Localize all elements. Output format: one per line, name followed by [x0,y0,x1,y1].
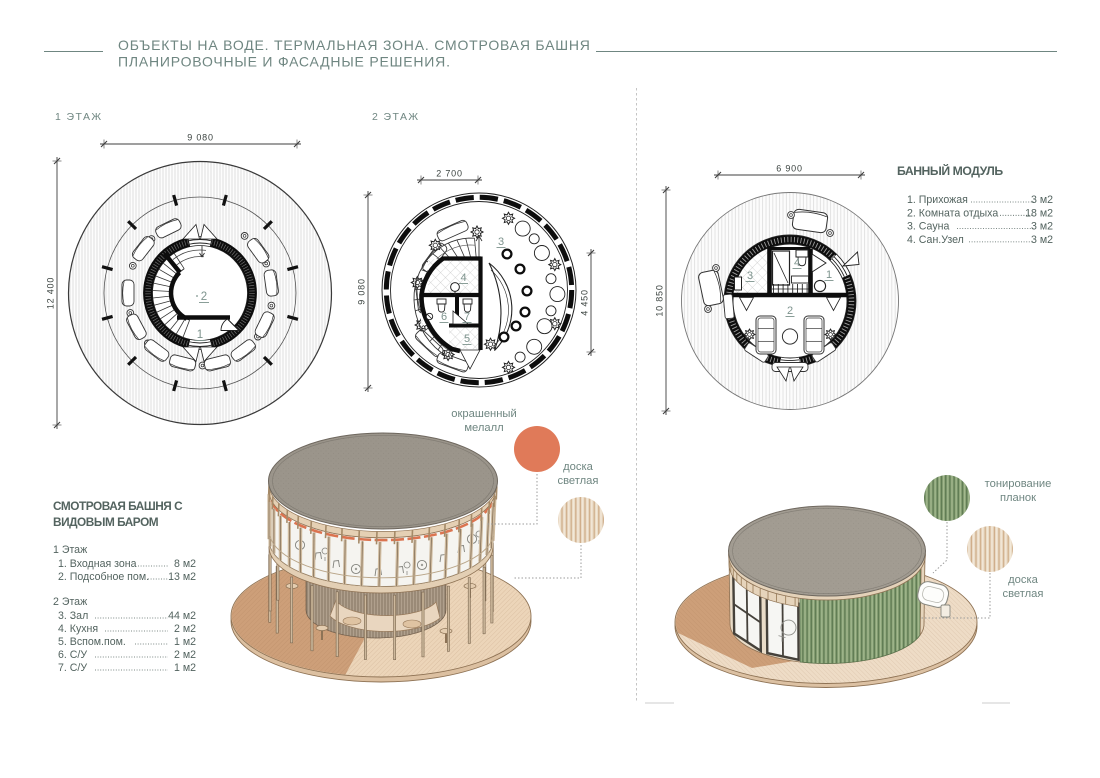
svg-text:13 м2: 13 м2 [168,571,196,583]
svg-text:3: 3 [498,236,504,248]
svg-text:5: 5 [464,333,470,345]
svg-text:5. Вспом.пом.: 5. Вспом.пом. [58,636,126,648]
svg-text:светлая: светлая [1003,588,1044,600]
svg-text:ОБЪЕКТЫ НА ВОДЕ. ТЕРМАЛЬНАЯ ЗО: ОБЪЕКТЫ НА ВОДЕ. ТЕРМАЛЬНАЯ ЗОНА. СМОТРО… [118,37,591,53]
svg-text:7. С/У: 7. С/У [58,662,87,674]
svg-text:мелалл: мелалл [464,422,503,434]
svg-text:9 080: 9 080 [357,278,367,305]
svg-text:БАННЫЙ МОДУЛЬ: БАННЫЙ МОДУЛЬ [897,163,1003,178]
svg-text:2. Подсобное пом.: 2. Подсобное пом. [58,571,149,583]
svg-text:3. Зал: 3. Зал [58,610,88,622]
svg-text:10 850: 10 850 [655,284,665,316]
svg-text:4. Кухня: 4. Кухня [58,623,98,635]
svg-text:3: 3 [747,270,753,282]
svg-text:светлая: светлая [558,475,599,487]
svg-text:1 ЭТАЖ: 1 ЭТАЖ [55,111,102,123]
svg-text:7: 7 [464,311,470,323]
svg-text:1 Этаж: 1 Этаж [53,544,88,556]
svg-text:1: 1 [826,269,832,281]
svg-text:1: 1 [197,329,203,341]
svg-text:9 080: 9 080 [187,133,214,143]
svg-text:1 м2: 1 м2 [174,662,196,674]
svg-text:1. Прихожая: 1. Прихожая [907,194,968,206]
svg-text:3. Сауна: 3. Сауна [907,221,949,233]
svg-text:тонирование: тонирование [985,478,1052,490]
svg-text:2 ЭТАЖ: 2 ЭТАЖ [372,111,419,123]
svg-text:12 400: 12 400 [46,277,56,309]
svg-text:доска: доска [563,461,593,473]
svg-text:4: 4 [794,257,800,269]
svg-text:ПЛАНИРОВОЧНЫЕ И ФАСАДНЫЕ РЕШЕН: ПЛАНИРОВОЧНЫЕ И ФАСАДНЫЕ РЕШЕНИЯ. [118,54,451,70]
svg-text:1 м2: 1 м2 [174,636,196,648]
svg-text:1. Входная зона: 1. Входная зона [58,558,137,570]
svg-text:доска: доска [1008,574,1038,586]
svg-text:2: 2 [787,305,793,317]
svg-text:4 450: 4 450 [580,289,590,316]
svg-text:8 м2: 8 м2 [174,558,196,570]
svg-text:18 м2: 18 м2 [1025,207,1053,219]
svg-text:4: 4 [460,272,466,284]
svg-text:6: 6 [441,311,447,323]
svg-text:6 900: 6 900 [776,164,803,174]
svg-text:3 м2: 3 м2 [1031,221,1053,233]
svg-text:4. Сан.Узел: 4. Сан.Узел [907,234,964,246]
svg-text:2 Этаж: 2 Этаж [53,596,88,608]
svg-text:2. Комната отдыха: 2. Комната отдыха [907,207,998,219]
svg-text:3 м2: 3 м2 [1031,234,1053,246]
svg-text:3 м2: 3 м2 [1031,194,1053,206]
svg-text:2 700: 2 700 [436,169,463,179]
svg-text:окрашенный: окрашенный [451,408,516,420]
svg-text:2 м2: 2 м2 [174,623,196,635]
svg-text:44 м2: 44 м2 [168,610,196,622]
svg-text:2: 2 [201,291,207,303]
svg-text:СМОТРОВАЯ БАШНЯ С: СМОТРОВАЯ БАШНЯ С [53,499,183,513]
svg-text:ВИДОВЫМ БАРОМ: ВИДОВЫМ БАРОМ [53,515,159,529]
svg-text:6. С/У: 6. С/У [58,649,87,661]
svg-text:планок: планок [1000,492,1036,504]
svg-text:2 м2: 2 м2 [174,649,196,661]
